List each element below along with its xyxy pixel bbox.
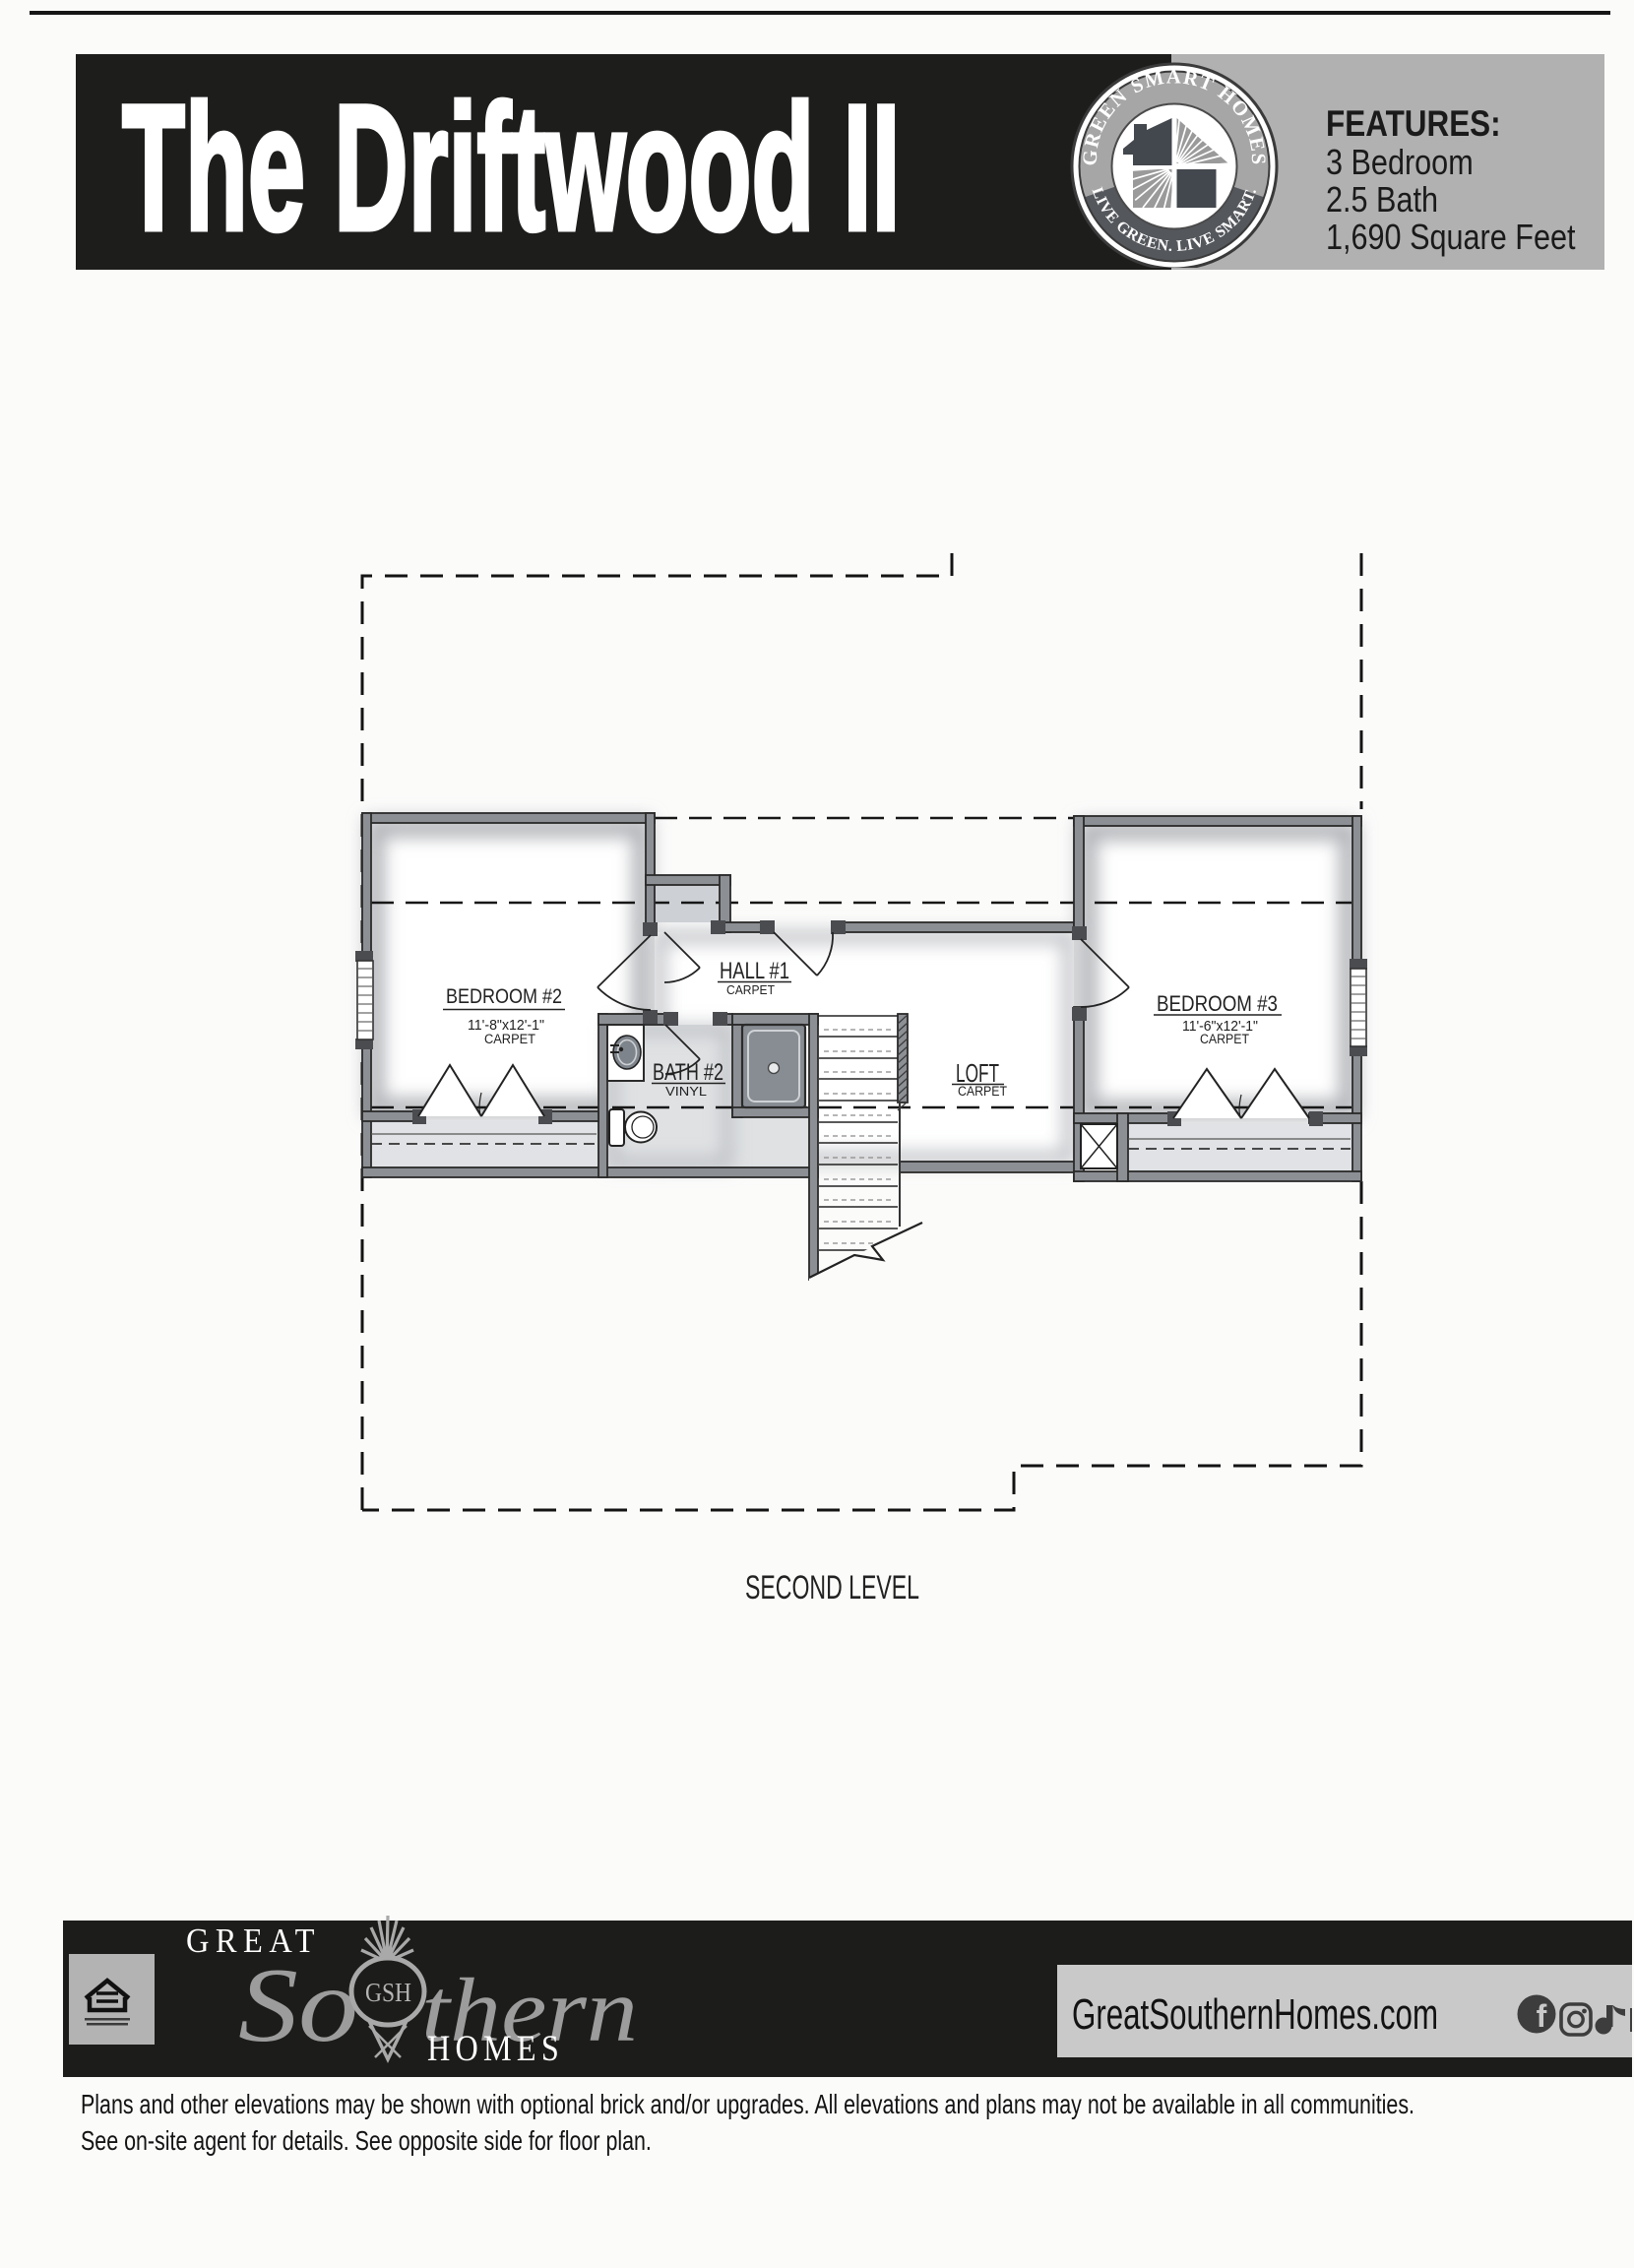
svg-text:HOMES: HOMES bbox=[427, 2029, 564, 2069]
svg-text:CARPET: CARPET bbox=[958, 1084, 1007, 1099]
svg-text:GSH: GSH bbox=[365, 1978, 411, 2007]
svg-text:CARPET: CARPET bbox=[726, 982, 775, 997]
svg-text:BEDROOM #2: BEDROOM #2 bbox=[446, 985, 562, 1008]
svg-text:So: So bbox=[238, 1947, 358, 2064]
svg-text:CARPET: CARPET bbox=[484, 1032, 535, 1046]
svg-text:VINYL: VINYL bbox=[665, 1084, 707, 1099]
svg-text:SECOND LEVEL: SECOND LEVEL bbox=[745, 1569, 919, 1606]
svg-text:CARPET: CARPET bbox=[1200, 1032, 1249, 1046]
svg-text:f: f bbox=[1537, 1998, 1547, 2034]
svg-text:BEDROOM #3: BEDROOM #3 bbox=[1157, 991, 1278, 1016]
svg-text:BATH #2: BATH #2 bbox=[653, 1059, 723, 1086]
svg-text:GreatSouthernHomes.com: GreatSouthernHomes.com bbox=[1072, 1990, 1438, 2039]
svg-text:HALL #1: HALL #1 bbox=[720, 958, 789, 984]
